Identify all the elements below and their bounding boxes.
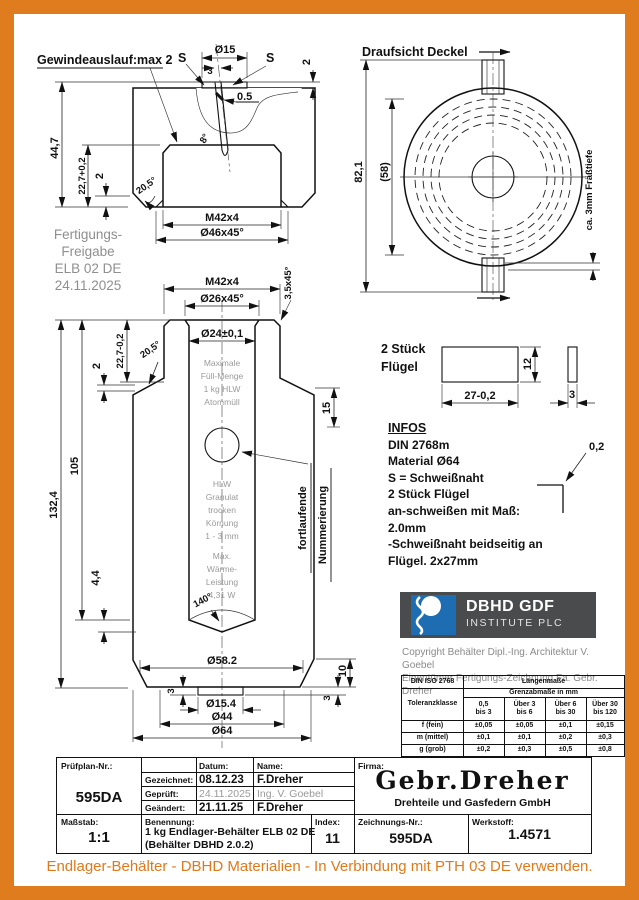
tol-class-header: Toleranzklasse [402, 688, 463, 720]
dbhd-logo: DBHD GDF INSTITUTE PLC [400, 592, 596, 638]
weld-label: S [266, 51, 274, 65]
datum-header: Datum: [199, 761, 228, 771]
dim-label: 20,5° [138, 339, 163, 361]
svg-text:Granulat: Granulat [206, 492, 239, 502]
dim-label: 82,1 [353, 161, 365, 182]
infos-line: Material Ø64 [388, 453, 573, 470]
title-block: Prüfplan-Nr.: 595DA Gezeichnet: Geprüft:… [56, 757, 592, 854]
row-label: Geprüft: [145, 789, 179, 799]
svg-text:HLW: HLW [213, 479, 231, 489]
svg-text:trocken: trocken [208, 505, 236, 515]
svg-text:Maximale: Maximale [204, 358, 241, 368]
dim-label: 2 [91, 363, 103, 369]
dim-body-205: 20,5° [138, 339, 163, 384]
wing-label-1: 2 Stück [381, 342, 426, 356]
dim-label: 3 [207, 66, 212, 77]
svg-text:1 kg HLW: 1 kg HLW [204, 384, 241, 394]
dim-label: Ø15.4 [206, 698, 237, 710]
dim-label: Ø58.2 [207, 655, 237, 667]
dim-body-15: 15 [315, 388, 340, 427]
bottom-recess [198, 687, 243, 695]
dim-body-44: 4,4 [90, 569, 136, 644]
dim-body-10: 10 [302, 659, 356, 687]
dim-body-cham26: Ø26x45° [185, 293, 259, 316]
werkstoff-value: 1.4571 [468, 822, 591, 846]
dim-label: 105 [69, 457, 81, 475]
container-section-view: Maximale Füll-Menge 1 kg HLW Atommüll HL… [48, 266, 356, 748]
dim-label: Ø44 [212, 711, 234, 723]
wing-front-view [442, 347, 518, 382]
tolerance-table: DIN ISO 2768 Längenmaße Grenzabmaße in m… [401, 675, 625, 757]
dim-lid-2: 2 [94, 173, 130, 220]
tol-span-header: Längenmaße [463, 676, 624, 688]
dim-angle8-label: 8° [198, 132, 212, 146]
dim-body-bore: Ø24±0,1 [189, 328, 255, 341]
release-note: Fertigungs- Freigabe ELB 02 DE 24.11.202… [40, 226, 136, 294]
lid-weld-plate [202, 82, 247, 88]
dim-label: 132,4 [48, 490, 60, 518]
dim-label: 12 [522, 358, 534, 370]
dim-label: 3,5x45° [283, 266, 294, 299]
svg-text:Max.: Max. [213, 551, 231, 561]
tol-cell: ±0,8 [586, 744, 624, 756]
lid-top-view: Draufsicht Deckel [353, 45, 600, 300]
dim-label: 2 [94, 173, 106, 179]
infos-line: 2.0mm [388, 520, 573, 537]
dim-label: Ø24±0,1 [201, 328, 243, 340]
tol-cell: ±0,1 [463, 732, 504, 744]
tol-cell: ±0,05 [504, 720, 545, 732]
tol-row-label: f (fein) [402, 720, 463, 732]
wing-label-2: Flügel [381, 360, 418, 374]
mill-depth-label: ca. 3mm Fräßtiefe [584, 150, 595, 231]
weld-callout-s-left: S [178, 51, 204, 85]
infos-line: 2 Stück Flügel [388, 486, 573, 503]
dim-label: Ø15 [215, 44, 236, 56]
dim-label: M42x4 [205, 212, 240, 224]
release-line: Freigabe [40, 243, 136, 260]
release-line: Fertigungs- [40, 226, 136, 243]
tol-corner-header: DIN ISO 2768 [402, 676, 463, 688]
tol-row-label: g (grob) [402, 744, 463, 756]
dim-wing-3: 3 [550, 384, 595, 408]
dim-label: 3 [322, 695, 333, 700]
infos-title: INFOS [388, 420, 573, 437]
svg-text:fortlaufende: fortlaufende [297, 486, 309, 550]
infos-line: -Schweißnaht beidseitig an [388, 536, 573, 553]
lid-section-view: 44,7 22,7+0,2 2 20,5° Gewindeauslauf:max… [37, 44, 320, 244]
dim-recess-3-left: 3 [166, 675, 196, 707]
dim-label: 4,4 [90, 569, 102, 585]
callout-label: Gewindeauslauf:max 2 [37, 53, 173, 67]
svg-text:1 - 3 mm: 1 - 3 mm [205, 531, 239, 541]
tol-cell: ±0,15 [586, 720, 624, 732]
dim-label: 3 [569, 389, 575, 401]
logo-title: DBHD GDF [466, 598, 554, 616]
row-label: Gezeichnet: [145, 775, 193, 785]
dim-label: M42x4 [205, 276, 240, 288]
dim-body-1324: 132,4 [48, 320, 128, 688]
infos-line: Flügel. 2x27mm [388, 553, 573, 570]
dim-body-2: 2 [91, 363, 135, 403]
massstab-value: 1:1 [57, 824, 141, 850]
dim-label: 22,7+0,2 [77, 157, 88, 194]
name-value: F.Dreher [257, 774, 303, 786]
name-value: F.Dreher [257, 802, 303, 814]
date-value: 21.11.25 [199, 802, 243, 814]
drawing-sheet-page: 44,7 22,7+0,2 2 20,5° Gewindeauslauf:max… [0, 0, 639, 900]
dim-label: Ø46x45° [200, 227, 244, 239]
dim-label: 10 [337, 665, 349, 677]
svg-text:Füll-Menge: Füll-Menge [201, 371, 244, 381]
release-line: 24.11.2025 [40, 277, 136, 294]
fill-note: Maximale Füll-Menge 1 kg HLW Atommüll [201, 358, 244, 407]
granulate-note: HLW Granulat trocken Körnung 1 - 3 mm [205, 479, 239, 541]
tol-sub-header: Grenzabmaße in mm [463, 688, 624, 697]
svg-text:Nummerierung: Nummerierung [317, 486, 329, 564]
firma-subtitle: Drehteile und Gasfedern GmbH [354, 796, 591, 810]
dim-label: (58) [379, 162, 391, 182]
dim-label: 44,7 [49, 137, 61, 158]
tol-cell: ±0,5 [545, 744, 586, 756]
weld-gap-value: 0,2 [589, 441, 604, 453]
dim-label: 2 [301, 59, 313, 65]
benennung-line: (Behälter DBHD 2.0.2) [145, 839, 254, 851]
tol-cell: ±0,1 [545, 720, 586, 732]
svg-text:Wärme-: Wärme- [207, 564, 237, 574]
svg-text:Atommüll: Atommüll [204, 397, 240, 407]
footer-note: Endlager-Behälter - DBHD Materialien - I… [14, 858, 625, 875]
infos-line: an-schweißen mit Maß: [388, 503, 573, 520]
dim-lid-447: 44,7 [49, 82, 128, 207]
tol-cell: ±0,1 [504, 732, 545, 744]
pruefplan-label: Prüfplan-Nr.: [61, 761, 112, 771]
pruefplan-value: 595DA [57, 784, 141, 810]
tol-cell: ±0,2 [463, 744, 504, 756]
dim-label: 22,7-0,2 [115, 334, 126, 369]
tol-col-header: 0,5bis 3 [463, 697, 504, 720]
row-label: Geändert: [145, 803, 185, 813]
date-value: 08.12.23 [199, 774, 244, 786]
release-line: ELB 02 DE [40, 260, 136, 277]
dim-lid-227: 22,7+0,2 [77, 145, 160, 207]
name-header: Name: [257, 761, 283, 771]
tol-col-header: Über 3bis 6 [504, 697, 545, 720]
dim-label: 3 [166, 688, 177, 693]
svg-text:Körnung: Körnung [206, 518, 238, 528]
weld-callout-s-right: S [233, 51, 274, 85]
dim-body-cham35: 3,5x45° [281, 266, 294, 320]
tol-cell: ±0,3 [586, 732, 624, 744]
view-title: Draufsicht Deckel [362, 45, 468, 59]
tol-cell: ±0,3 [504, 744, 545, 756]
dim-label: 20,5° [134, 175, 159, 197]
infos-block: INFOS DIN 2768m Material Ø64 S = Schweiß… [388, 420, 573, 569]
tol-cell: ±0,2 [545, 732, 586, 744]
dim-lid-slot3: 3 [202, 66, 233, 77]
dim-label: 15 [321, 402, 333, 414]
copyright-line: Copyright Behälter Dipl.-Ing. Architektu… [402, 646, 617, 672]
dim-label: 27-0,2 [464, 390, 495, 402]
dim-top-821: 82,1 [353, 60, 482, 292]
dim-recess-3-right: 3 [245, 675, 346, 707]
dim-label: 0.5 [237, 91, 252, 103]
wing-side-view [568, 347, 577, 382]
tol-col-header: Über 6bis 30 [545, 697, 586, 720]
callout-thread-runout: Gewindeauslauf:max 2 [37, 53, 177, 142]
benennung-line: 1 kg Endlager-Behälter ELB 02 DE [145, 826, 315, 838]
index-value: 11 [311, 826, 354, 850]
wing-detail-view: 2 Stück Flügel 12 27-0,2 3 [381, 342, 595, 408]
tol-cell: ±0,05 [463, 720, 504, 732]
tol-col-header: Über 30bis 120 [586, 697, 624, 720]
circle-icon [421, 596, 441, 616]
firma-name: Gebr.Dreher [354, 766, 591, 794]
infos-line: S = Schweißnaht [388, 470, 573, 487]
date-value: 24.11.2025 [199, 788, 251, 800]
zeichnung-value: 595DA [354, 826, 468, 850]
logo-subtitle: INSTITUTE PLC [466, 617, 563, 629]
dim-lid-plate2: 2 [301, 59, 313, 100]
dim-label: Ø64 [212, 725, 234, 737]
weld-label: S [178, 51, 186, 65]
dim-body-582: Ø58.2 [140, 655, 303, 673]
infos-line: DIN 2768m [388, 437, 573, 454]
tol-row-label: m (mittel) [402, 732, 463, 744]
dim-label: Ø26x45° [200, 293, 244, 305]
name-value: Ing. V. Goebel [257, 788, 323, 800]
dim-wing-12: 12 [520, 347, 541, 382]
svg-text:Leistung: Leistung [206, 577, 238, 587]
dim-wing-27: 27-0,2 [442, 384, 518, 408]
